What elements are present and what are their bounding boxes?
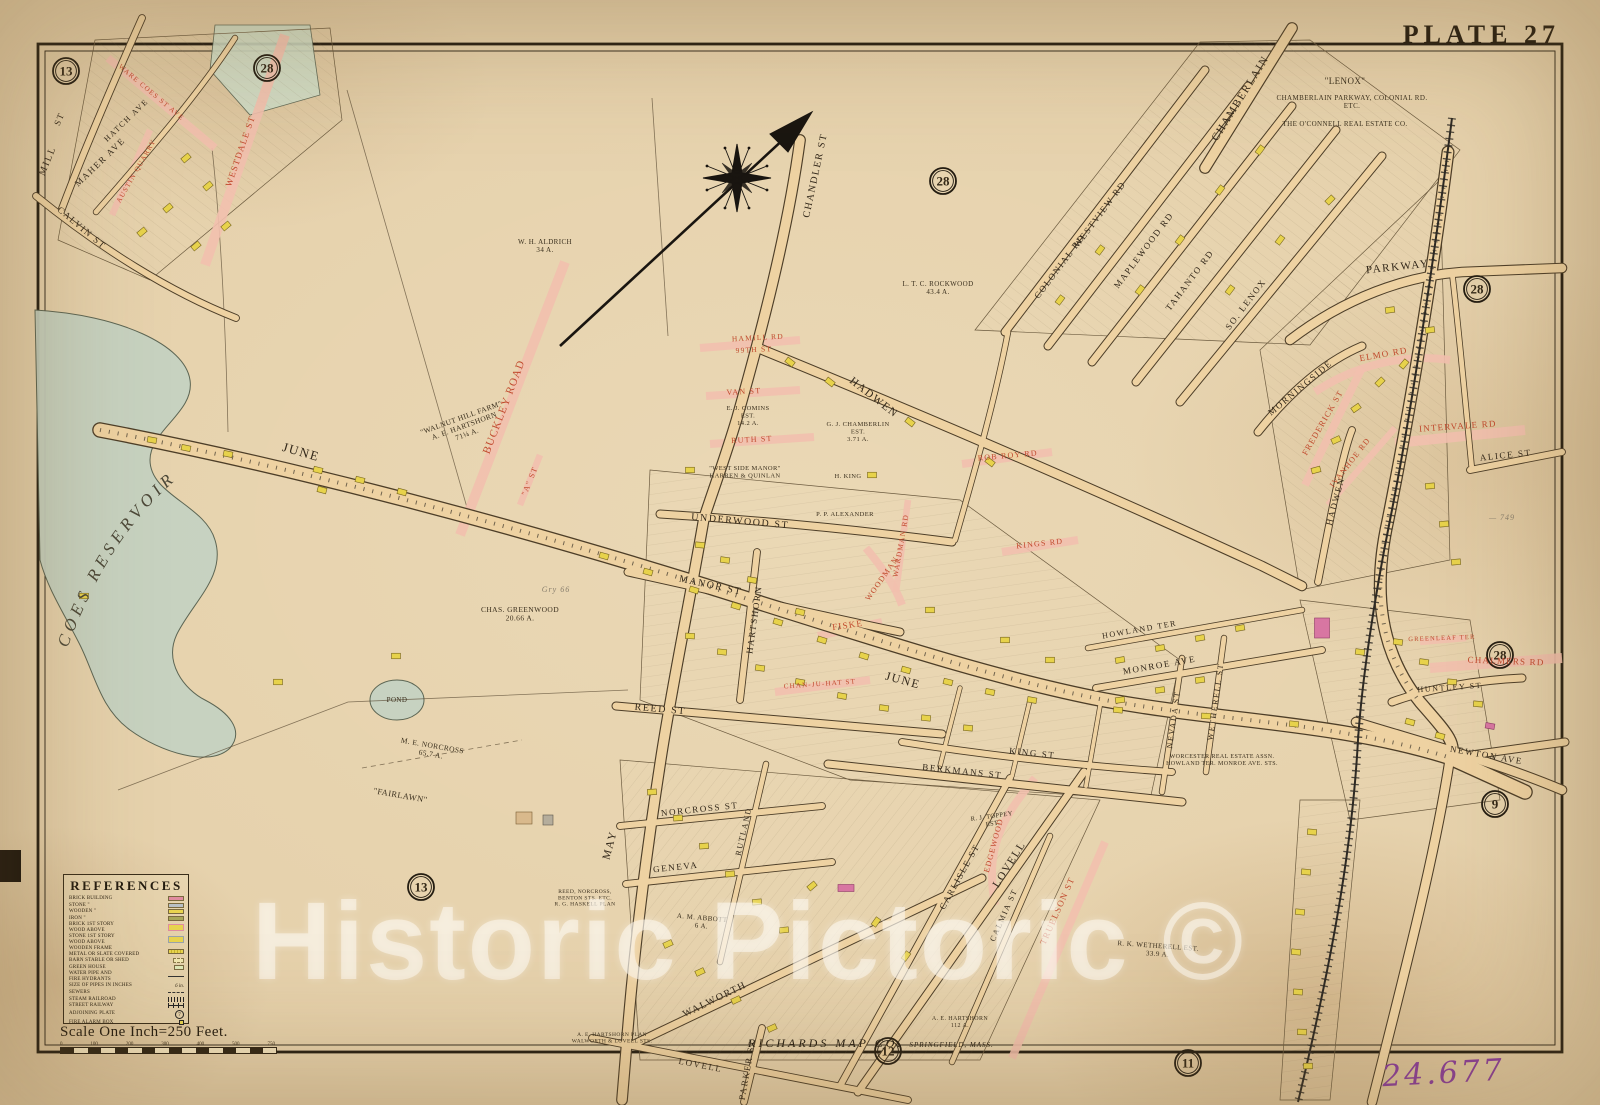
legend-item-label: ADJOINING PLATE (69, 1011, 115, 1016)
building (747, 577, 757, 584)
svg-text:11: 11 (1182, 1056, 1194, 1071)
map-annotation: L. T. C. ROCKWOOD43.4 A. (902, 280, 973, 296)
building (1307, 829, 1316, 835)
scale-area: Scale One Inch=250 Feet. 010020030040050… (60, 1024, 290, 1054)
building (1425, 483, 1434, 489)
map-annotation: G. J. CHAMBERLINEST.3.71 A. (826, 421, 889, 443)
building (720, 557, 730, 564)
building (274, 679, 283, 685)
plate-title: PLATE 27 (1403, 20, 1560, 50)
map-annotation: H. KING (835, 473, 862, 480)
scale-text: Scale One Inch=250 Feet. (60, 1024, 290, 1041)
building (1155, 645, 1165, 652)
legend-item: BARN STABLE OR SHED (69, 958, 184, 963)
legend-item: WATER PIPE AND FIRE HYDRANTS (69, 971, 184, 982)
building (1304, 1063, 1313, 1069)
legend-item: IRON " (69, 916, 184, 921)
building (755, 665, 765, 672)
building (905, 417, 915, 427)
legend-swatch-sewer (168, 992, 184, 993)
building (1293, 989, 1302, 995)
legend-references: REFERENCES BRICK BUILDINGSTONE "WOODEN "… (63, 874, 189, 1024)
map-annotation: R. K. WETHERELL EST.33.9 A. (1117, 939, 1200, 961)
street-label: ST (52, 111, 67, 128)
building (1297, 1029, 1306, 1035)
publisher-name: RICHARDS MAP CO. (748, 1036, 903, 1050)
building (392, 653, 401, 659)
scale-tick: 500 (232, 1042, 240, 1047)
publisher-credit: RICHARDS MAP CO. SPRINGFIELD, MASS. (748, 1036, 994, 1051)
svg-text:28: 28 (937, 174, 951, 189)
map-annotation: THE O'CONNELL REAL ESTATE CO. (1282, 120, 1407, 128)
building (1439, 521, 1448, 527)
map-annotation: P. P. ALEXANDER (816, 511, 874, 518)
building (725, 871, 734, 877)
map-annotation: "WEST SIDE MANOR"HARREN & QUINLAN (709, 465, 781, 479)
legend-item: WOODEN FRAME METAL OR SLATE COVERED (69, 946, 184, 957)
building (1046, 657, 1055, 663)
building (1235, 625, 1245, 632)
building (543, 815, 553, 825)
legend-swatch-adjplate: 7 (175, 1010, 184, 1019)
legend-item: GREEN HOUSE (69, 965, 184, 970)
building (1195, 677, 1205, 684)
building (1027, 697, 1037, 704)
street-label: MILL (37, 145, 59, 178)
legend-item-label: WATER PIPE AND FIRE HYDRANTS (69, 971, 112, 982)
legend-item-label: GREEN HOUSE (69, 965, 106, 970)
building (921, 715, 931, 721)
legend-item-label: STONE 1ST STORY WOOD ABOVE (69, 934, 115, 945)
legend-item-label: SEWERS (69, 990, 90, 995)
handwritten-catalog-number: 24.677 (1381, 1053, 1506, 1094)
building (147, 437, 157, 444)
map-annotation: REED, NORCROSS,BENTON STS. ETC.R. G. HAS… (555, 889, 616, 908)
legend-item-label: STONE " (69, 903, 90, 908)
legend-item: STONE 1ST STORY WOOD ABOVE (69, 934, 184, 945)
street-label: MAY (600, 829, 619, 861)
adjoining-plate-11: 11 (1175, 1050, 1201, 1076)
building (1393, 639, 1403, 646)
legend-swatch-brickwood (168, 924, 184, 931)
legend-swatch-barn (173, 958, 184, 963)
map-annotation: Gry 66 (542, 585, 570, 594)
map-annotation: CHAS. GREENWOOD20.66 A. (481, 605, 559, 623)
building (1295, 909, 1305, 915)
proposed-street-label: 99TH ST (735, 344, 772, 355)
adjoining-plate-28: 28 (1464, 276, 1490, 302)
building (516, 812, 532, 824)
building (1289, 721, 1299, 727)
legend-item: STONE " (69, 903, 184, 908)
legend-item: BRICK 1ST STORY WOOD ABOVE (69, 922, 184, 933)
scale-bar (60, 1047, 277, 1054)
legend-swatch-water (168, 974, 184, 979)
map-annotation: A. E. HARTSHORN PLANWALWORTH & LOVELL ST… (572, 1032, 653, 1044)
map-annotation: — 749 (1488, 513, 1515, 522)
building (1355, 649, 1365, 656)
building (868, 472, 877, 478)
building (963, 725, 972, 731)
building (1473, 701, 1482, 707)
brick-building (1485, 723, 1495, 730)
building (1301, 869, 1310, 875)
legend-swatch-brick (168, 896, 184, 901)
building (1001, 637, 1010, 643)
scale-tick: 200 (126, 1042, 134, 1047)
scale-tick: 400 (197, 1042, 205, 1047)
svg-text:28: 28 (1471, 282, 1485, 297)
building (1195, 635, 1205, 642)
building (879, 705, 889, 712)
scale-tick: 300 (161, 1042, 169, 1047)
legend-item: ADJOINING PLATE7 (69, 1010, 184, 1019)
building (1155, 687, 1165, 694)
legend-item-label: IRON " (69, 916, 86, 921)
legend-item-label: STEAM RAILROAD (69, 997, 116, 1002)
svg-text:13: 13 (60, 64, 74, 79)
building (1291, 949, 1301, 955)
proposed-street-label: "A" ST (520, 465, 540, 497)
adjoining-plate-13: 13 (408, 874, 434, 900)
legend-swatch-steamrr (168, 997, 184, 1002)
building (1115, 697, 1125, 704)
legend-swatch-stone (168, 903, 184, 908)
map-canvas: 13282828289131211 COES RESERVOIRJUNEJUNE… (0, 0, 1600, 1105)
building (1425, 327, 1435, 334)
brick-building (838, 885, 854, 892)
street-label: WETHERELL ST (1206, 662, 1226, 741)
svg-text:13: 13 (415, 880, 429, 895)
adjoining-plate-13: 13 (53, 58, 79, 84)
legend-item-label: BRICK BUILDING (69, 896, 113, 901)
legend-item-label: SIZE OF PIPES IN INCHES (69, 983, 132, 988)
legend-swatch-green (174, 965, 184, 970)
building (926, 607, 935, 613)
compass-rose (560, 112, 812, 346)
scale-tick: 0 (60, 1042, 63, 1047)
map-annotation: POND (387, 696, 408, 704)
map-annotation: "FAIRLAWN" (373, 785, 428, 804)
building (1385, 307, 1395, 314)
brick-building (1315, 618, 1330, 638)
map-annotation: WORCESTER REAL ESTATE ASSN.HOWLAND TER. … (1166, 754, 1278, 767)
building (699, 843, 708, 849)
legend-swatch-pipes: 6 in. (175, 984, 184, 989)
building (686, 467, 695, 473)
building (1113, 707, 1123, 713)
building (685, 633, 694, 639)
svg-text:28: 28 (261, 61, 275, 76)
svg-text:9: 9 (1492, 797, 1499, 812)
legend-item: STEAM RAILROAD (69, 997, 184, 1002)
scale-tick: 750 (267, 1042, 275, 1047)
legend-item-label: BARN STABLE OR SHED (69, 958, 129, 963)
proposed-street-label: VAN ST (726, 386, 761, 397)
building (647, 789, 656, 795)
street-label: HADWEN (847, 375, 900, 420)
scale-tick: 100 (90, 1042, 98, 1047)
legend-title: REFERENCES (69, 878, 184, 894)
legend-item: SIZE OF PIPES IN INCHES6 in. (69, 983, 184, 988)
map-annotation: W. H. ALDRICH34 A. (518, 238, 572, 254)
legend-item: BRICK BUILDING (69, 896, 184, 901)
scan-ink-artifact (0, 850, 21, 882)
publisher-location: SPRINGFIELD, MASS. (909, 1041, 993, 1049)
legend-swatch-streetrwy (168, 1003, 184, 1008)
street-label: JUNE (281, 439, 322, 464)
building (752, 899, 761, 905)
legend-swatch-frame (168, 949, 184, 954)
street-label: CHANDLER ST (801, 132, 830, 219)
building (695, 542, 704, 548)
building (717, 649, 727, 655)
building (1115, 657, 1125, 664)
legend-swatch-wood (168, 909, 184, 914)
legend-swatch-iron (168, 916, 184, 921)
legend-item: SEWERS (69, 990, 184, 995)
legend-item-label: WOODEN FRAME METAL OR SLATE COVERED (69, 946, 139, 957)
building (1419, 659, 1429, 666)
legend-swatch-stonewood (168, 936, 184, 943)
coes-reservoir (35, 310, 236, 757)
atlas-scan-page: { "plate": { "title": "PLATE 27", "numbe… (0, 0, 1600, 1105)
legend-item-label: WOODEN " (69, 909, 96, 914)
legend-item-label: STREET RAILWAY (69, 1003, 114, 1008)
legend-item: STREET RAILWAY (69, 1003, 184, 1008)
adjoining-plate-28: 28 (930, 168, 956, 194)
building (1451, 559, 1460, 565)
legend-item: WOODEN " (69, 909, 184, 914)
legend-item-label: BRICK 1ST STORY WOOD ABOVE (69, 922, 114, 933)
legend-rows: BRICK BUILDINGSTONE "WOODEN "IRON "BRICK… (69, 896, 184, 1025)
building (779, 927, 789, 933)
map-annotation: "LENOX" (1325, 76, 1366, 86)
building (837, 693, 847, 700)
